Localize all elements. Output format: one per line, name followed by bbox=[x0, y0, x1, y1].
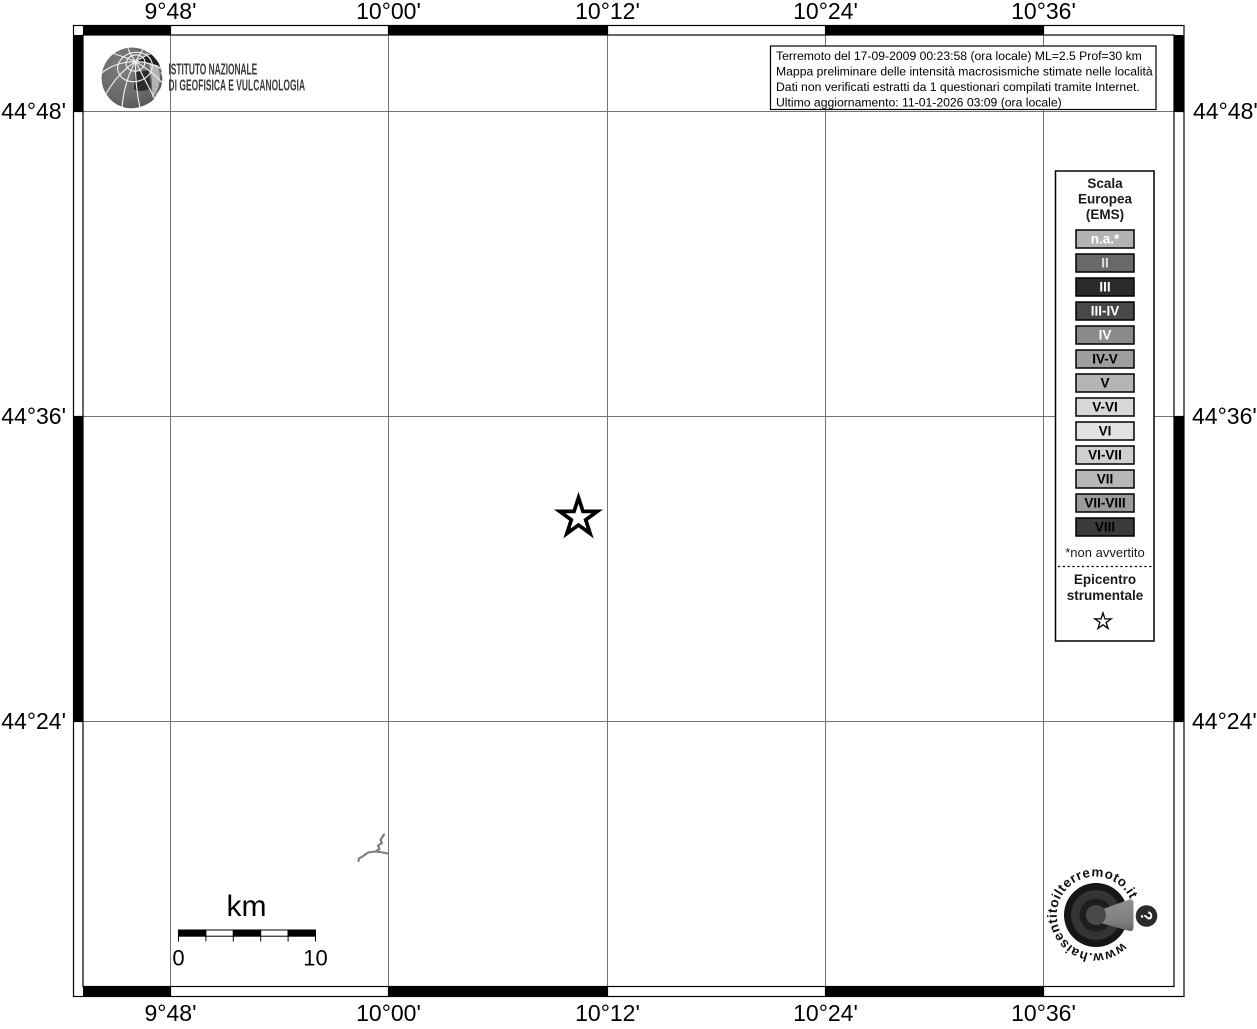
svg-text:IV-V: IV-V bbox=[1092, 352, 1118, 367]
svg-text:10°36': 10°36' bbox=[1011, 1000, 1076, 1024]
svg-text:9°48': 9°48' bbox=[145, 1000, 197, 1024]
svg-text:III-IV: III-IV bbox=[1091, 304, 1120, 319]
svg-text:Epicentro: Epicentro bbox=[1074, 572, 1136, 587]
svg-text:V-VI: V-VI bbox=[1092, 400, 1118, 415]
svg-text:km: km bbox=[227, 890, 267, 923]
svg-text:II: II bbox=[1101, 256, 1109, 271]
svg-text:Terremoto del 17-09-2009 00:23: Terremoto del 17-09-2009 00:23:58 (ora l… bbox=[776, 49, 1142, 63]
svg-text:10°12': 10°12' bbox=[575, 0, 640, 24]
svg-text:VII: VII bbox=[1097, 472, 1114, 487]
svg-text:Mappa preliminare delle intens: Mappa preliminare delle intensità macros… bbox=[776, 65, 1153, 79]
svg-text:10°24': 10°24' bbox=[793, 1000, 858, 1024]
svg-text:44°48': 44°48' bbox=[1, 98, 66, 124]
svg-text:Europea: Europea bbox=[1078, 192, 1133, 207]
svg-text:VI: VI bbox=[1099, 424, 1112, 439]
svg-text:DI GEOFISICA E VULCANOLOGIA: DI GEOFISICA E VULCANOLOGIA bbox=[169, 75, 305, 94]
svg-text:44°36': 44°36' bbox=[1, 403, 66, 429]
svg-text:n.a.*: n.a.* bbox=[1091, 232, 1120, 247]
svg-text:*non avvertito: *non avvertito bbox=[1065, 545, 1145, 560]
svg-text:VII-VIII: VII-VIII bbox=[1084, 496, 1125, 511]
svg-text:44°48': 44°48' bbox=[1193, 98, 1257, 124]
svg-text:44°24': 44°24' bbox=[1, 708, 66, 734]
svg-text:IV: IV bbox=[1099, 328, 1112, 343]
svg-text:Ultimo aggiornamento: 11-01-20: Ultimo aggiornamento: 11-01-2026 03:09 (… bbox=[776, 96, 1062, 110]
svg-text:44°36': 44°36' bbox=[1192, 403, 1257, 429]
svg-text:10°36': 10°36' bbox=[1011, 0, 1076, 24]
svg-text:VI-VII: VI-VII bbox=[1088, 448, 1122, 463]
svg-text:0: 0 bbox=[172, 946, 184, 971]
svg-text:10°24': 10°24' bbox=[793, 0, 858, 24]
svg-text:Dati non verificati estratti d: Dati non verificati estratti da 1 questi… bbox=[776, 80, 1140, 94]
svg-text:10: 10 bbox=[303, 946, 327, 971]
svg-text:10°12': 10°12' bbox=[575, 1000, 640, 1024]
svg-text:10°00': 10°00' bbox=[356, 1000, 421, 1024]
svg-text:Scala: Scala bbox=[1087, 176, 1123, 191]
svg-text:44°24': 44°24' bbox=[1192, 708, 1257, 734]
svg-text:III: III bbox=[1099, 280, 1110, 295]
svg-text:strumentale: strumentale bbox=[1067, 588, 1144, 603]
svg-text:10°00': 10°00' bbox=[356, 0, 421, 24]
svg-text:V: V bbox=[1100, 376, 1109, 391]
svg-text:VIII: VIII bbox=[1095, 520, 1115, 535]
svg-text:(EMS): (EMS) bbox=[1086, 207, 1124, 222]
svg-text:9°48': 9°48' bbox=[145, 0, 197, 24]
